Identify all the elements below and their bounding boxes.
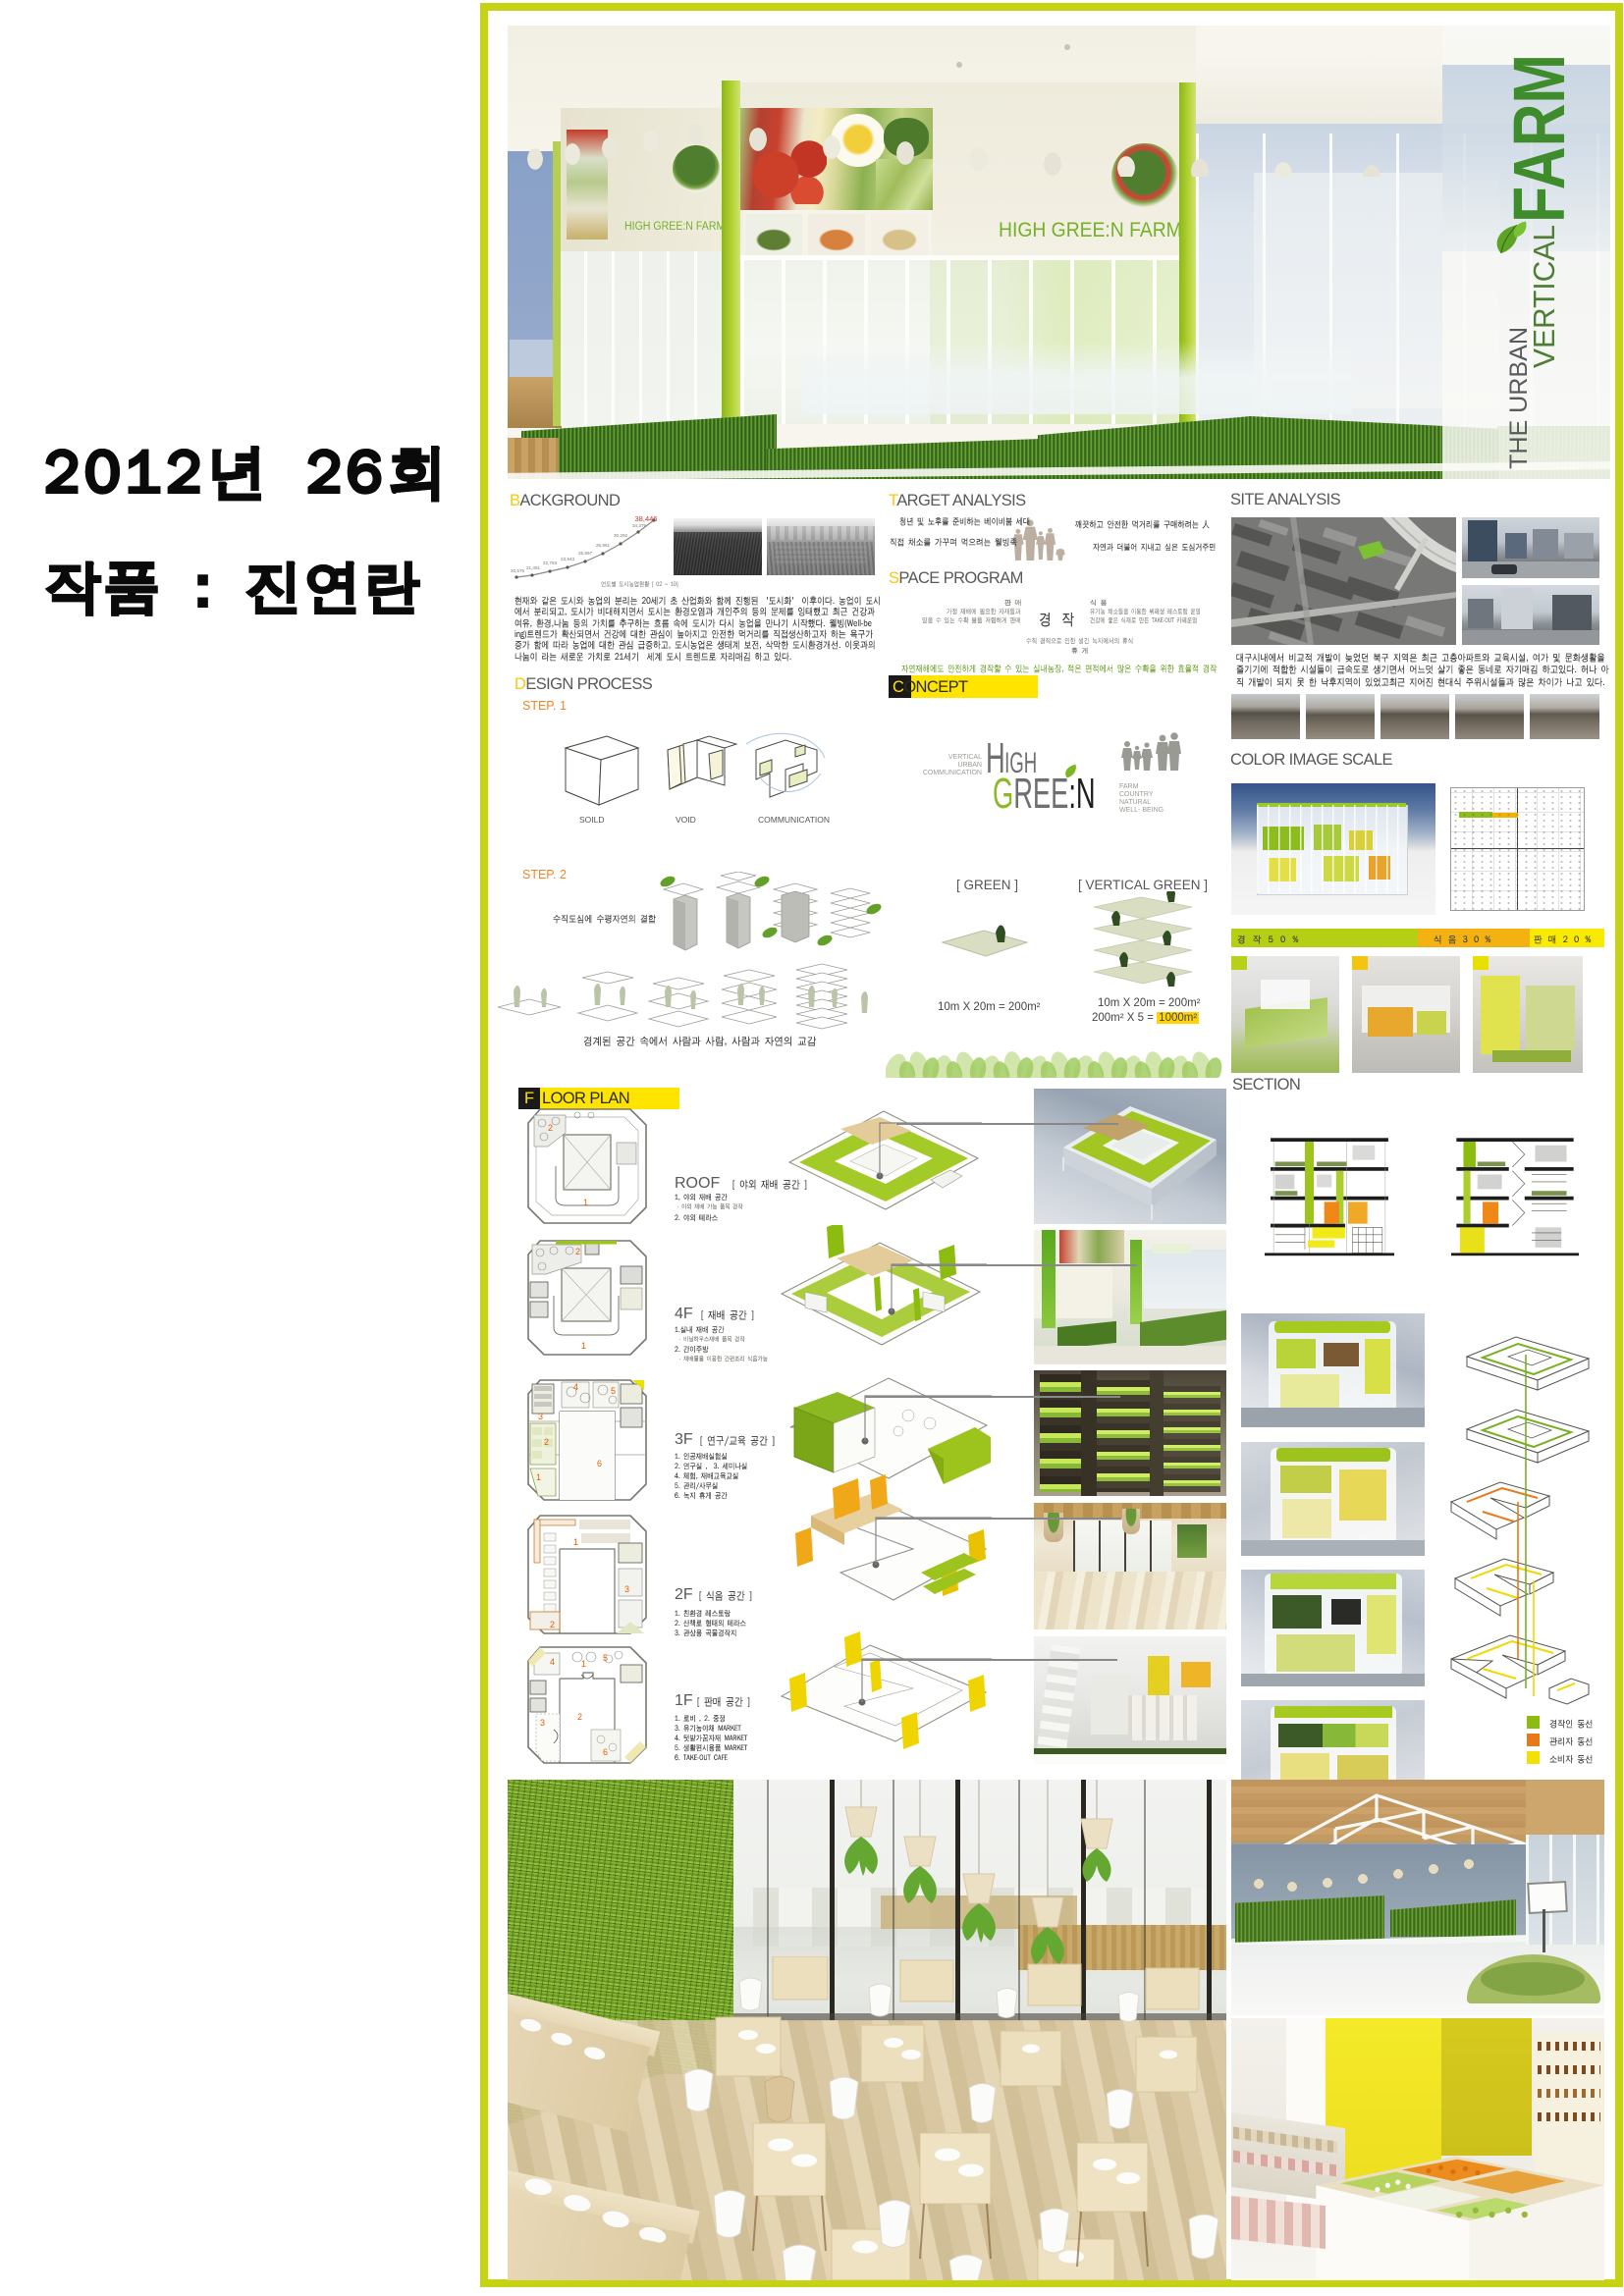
svg-text:6: 6 — [597, 1459, 602, 1468]
svg-text:5: 5 — [603, 1653, 608, 1663]
svg-text:34,379: 34,379 — [632, 523, 646, 528]
svg-text:1: 1 — [573, 1537, 578, 1547]
svg-text:4: 4 — [573, 1382, 578, 1392]
svg-text:2: 2 — [544, 1437, 549, 1447]
svg-text:25,897: 25,897 — [578, 551, 592, 556]
svg-text:1: 1 — [581, 1341, 586, 1351]
svg-text:2: 2 — [575, 1247, 580, 1256]
svg-text:23,943: 23,943 — [561, 557, 574, 561]
svg-text:1: 1 — [536, 1472, 541, 1482]
svg-text:25,961: 25,961 — [596, 543, 610, 548]
svg-text:5: 5 — [611, 1386, 616, 1396]
svg-text:6: 6 — [603, 1747, 608, 1757]
svg-text:21,491: 21,491 — [526, 565, 540, 570]
svg-text:2: 2 — [577, 1712, 582, 1722]
svg-text:1: 1 — [583, 1198, 588, 1207]
svg-text:FARM: FARM — [1498, 54, 1580, 223]
svg-text:1: 1 — [581, 1659, 586, 1669]
svg-text:3: 3 — [540, 1718, 545, 1728]
svg-text:2: 2 — [550, 1620, 555, 1629]
svg-text:20,575: 20,575 — [511, 568, 524, 573]
svg-text:30,292: 30,292 — [614, 533, 627, 538]
svg-text:3: 3 — [624, 1584, 629, 1594]
svg-text:38,446: 38,446 — [635, 516, 658, 523]
svg-text:22,753: 22,753 — [543, 561, 557, 565]
svg-text:4: 4 — [550, 1657, 555, 1667]
svg-text:THE URBAN: THE URBAN — [1505, 327, 1533, 469]
svg-text:3: 3 — [538, 1412, 543, 1421]
svg-text:2: 2 — [548, 1123, 553, 1133]
